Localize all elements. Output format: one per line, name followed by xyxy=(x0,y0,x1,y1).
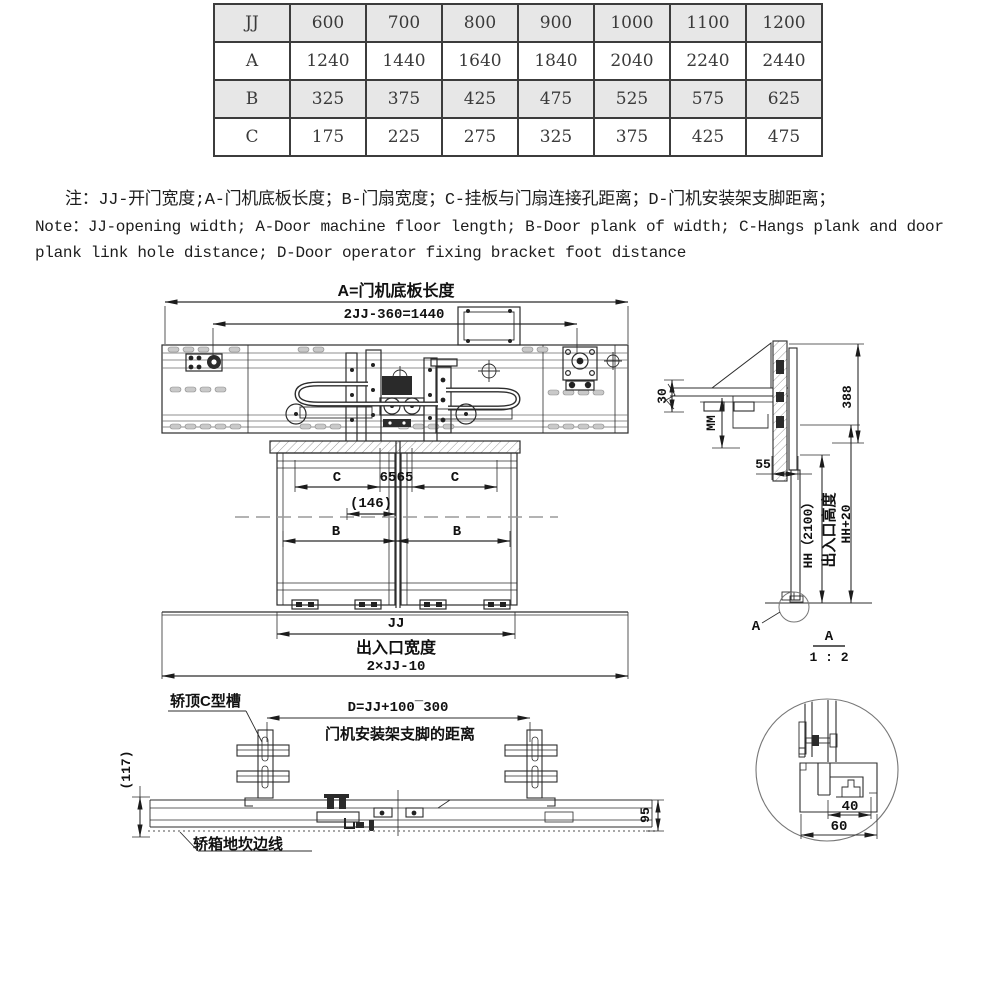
left-pulley xyxy=(186,354,222,371)
dim-hh-label: HH（2100） xyxy=(800,496,816,569)
note-line-cn: 注：JJ-开门宽度;A-门机底板长度；B-门扇宽度；C-挂板与门扇连接孔距离；D… xyxy=(35,188,975,214)
right-bracket xyxy=(505,730,557,806)
drawing-sheet: JJ 600 700 800 900 1000 1100 1200 A 1240… xyxy=(0,0,1000,1000)
bottom-view: 轿顶C型槽 D=JJ+100¯300 门机安装架支脚的距离 xyxy=(119,692,664,853)
table-cell: 375 xyxy=(594,118,670,156)
table-cell: 1440 xyxy=(366,42,442,80)
table-cell: B xyxy=(214,80,290,118)
drive-motor xyxy=(380,359,457,433)
table-cell: 900 xyxy=(518,4,594,42)
table-cell: 800 xyxy=(442,4,518,42)
left-bracket xyxy=(237,730,289,806)
table-cell: 2240 xyxy=(670,42,746,80)
table-cell: 1240 xyxy=(290,42,366,80)
base-plate xyxy=(150,790,652,836)
dim-65-left-label: 65 xyxy=(380,470,397,486)
table-cell: 600 xyxy=(290,4,366,42)
dim-exit-width-label: 2×JJ-10 xyxy=(367,659,426,675)
detail-marker-label: A xyxy=(752,619,761,635)
dim-40-label: 40 xyxy=(842,799,859,815)
dim-95-label: 95 xyxy=(638,807,653,823)
table-cell: 475 xyxy=(746,118,822,156)
table-cell: 1200 xyxy=(746,4,822,42)
dim-30-label: 30 xyxy=(655,388,670,404)
detail-view: 40 60 xyxy=(756,698,898,841)
dim-hh20-label: HH+20 xyxy=(839,504,854,543)
table-cell: JJ xyxy=(214,4,290,42)
table-cell: 425 xyxy=(442,80,518,118)
dim-c-right-label: C xyxy=(451,470,460,486)
table-cell: 325 xyxy=(518,118,594,156)
technical-drawing: A=门机底板长度 2JJ-360=1440 xyxy=(0,276,1000,1000)
d-desc-label: 门机安装架支脚的距离 xyxy=(325,725,475,743)
table-cell: 425 xyxy=(670,118,746,156)
dim-117-label: (117) xyxy=(119,750,134,789)
detail-content xyxy=(799,698,877,812)
c-channel-label: 轿顶C型槽 xyxy=(170,692,241,710)
note-line-en-2: plank link hole distance; D-Door operato… xyxy=(35,240,975,266)
table-row: C 175 225 275 325 375 425 475 xyxy=(214,118,822,156)
table-cell: 700 xyxy=(366,4,442,42)
table-cell: 625 xyxy=(746,80,822,118)
dim-2jj-label: 2JJ-360=1440 xyxy=(344,307,445,323)
table-cell: 2040 xyxy=(594,42,670,80)
dim-c-left-label: C xyxy=(333,470,342,486)
table-cell: 525 xyxy=(594,80,670,118)
dim-65-right-label: 65 xyxy=(397,470,414,486)
table-cell: 2440 xyxy=(746,42,822,80)
dim-mm-label: MM xyxy=(704,415,719,431)
table-cell: C xyxy=(214,118,290,156)
notes-block: 注：JJ-开门宽度;A-门机底板长度；B-门扇宽度；C-挂板与门扇连接孔距离；D… xyxy=(35,188,975,266)
dim-floor-length-label: A=门机底板长度 xyxy=(338,281,456,300)
dim-d-label: D=JJ+100¯300 xyxy=(348,700,449,716)
note-line-en-1: Note：JJ-opening width; A-Door machine fl… xyxy=(35,214,975,240)
dim-jj-label: JJ xyxy=(388,616,405,632)
exit-height-label: 出入口高度 xyxy=(820,492,838,568)
table-cell: 175 xyxy=(290,118,366,156)
right-pulley xyxy=(563,347,597,390)
front-view: A=门机底板长度 2JJ-360=1440 xyxy=(162,281,628,679)
side-view: 30 MM 388 55 HH（2100） 出入口高度 HH+20 xyxy=(655,341,872,665)
table-cell: 1000 xyxy=(594,4,670,42)
table-cell: 475 xyxy=(518,80,594,118)
table-cell: 375 xyxy=(366,80,442,118)
table-cell: 1100 xyxy=(670,4,746,42)
door-panels xyxy=(235,441,558,609)
spec-table: JJ 600 700 800 900 1000 1100 1200 A 1240… xyxy=(213,3,823,157)
table-row: B 325 375 425 475 525 575 625 xyxy=(214,80,822,118)
table-row: JJ 600 700 800 900 1000 1100 1200 xyxy=(214,4,822,42)
dim-60-label: 60 xyxy=(831,819,848,835)
table-cell: 1640 xyxy=(442,42,518,80)
sill-line-label: 轿箱地坎边线 xyxy=(193,835,283,853)
section-scale-label: 1 : 2 xyxy=(809,650,848,665)
table-cell: 1840 xyxy=(518,42,594,80)
table-cell: 225 xyxy=(366,118,442,156)
dim-b-left-label: B xyxy=(332,524,341,540)
table-cell: A xyxy=(214,42,290,80)
dim-b-right-label: B xyxy=(453,524,462,540)
table-cell: 575 xyxy=(670,80,746,118)
exit-width-label: 出入口宽度 xyxy=(356,638,437,657)
dim-388-label: 388 xyxy=(840,385,855,409)
table-cell: 275 xyxy=(442,118,518,156)
table-cell: 325 xyxy=(290,80,366,118)
dim-55-label: 55 xyxy=(755,457,771,472)
table-row: A 1240 1440 1640 1840 2040 2240 2440 xyxy=(214,42,822,80)
control-box xyxy=(458,307,520,345)
section-label: A xyxy=(825,629,834,645)
dim-146-label: (146) xyxy=(350,496,392,512)
sill-and-jj: JJ 出入口宽度 2×JJ-10 xyxy=(162,612,628,679)
